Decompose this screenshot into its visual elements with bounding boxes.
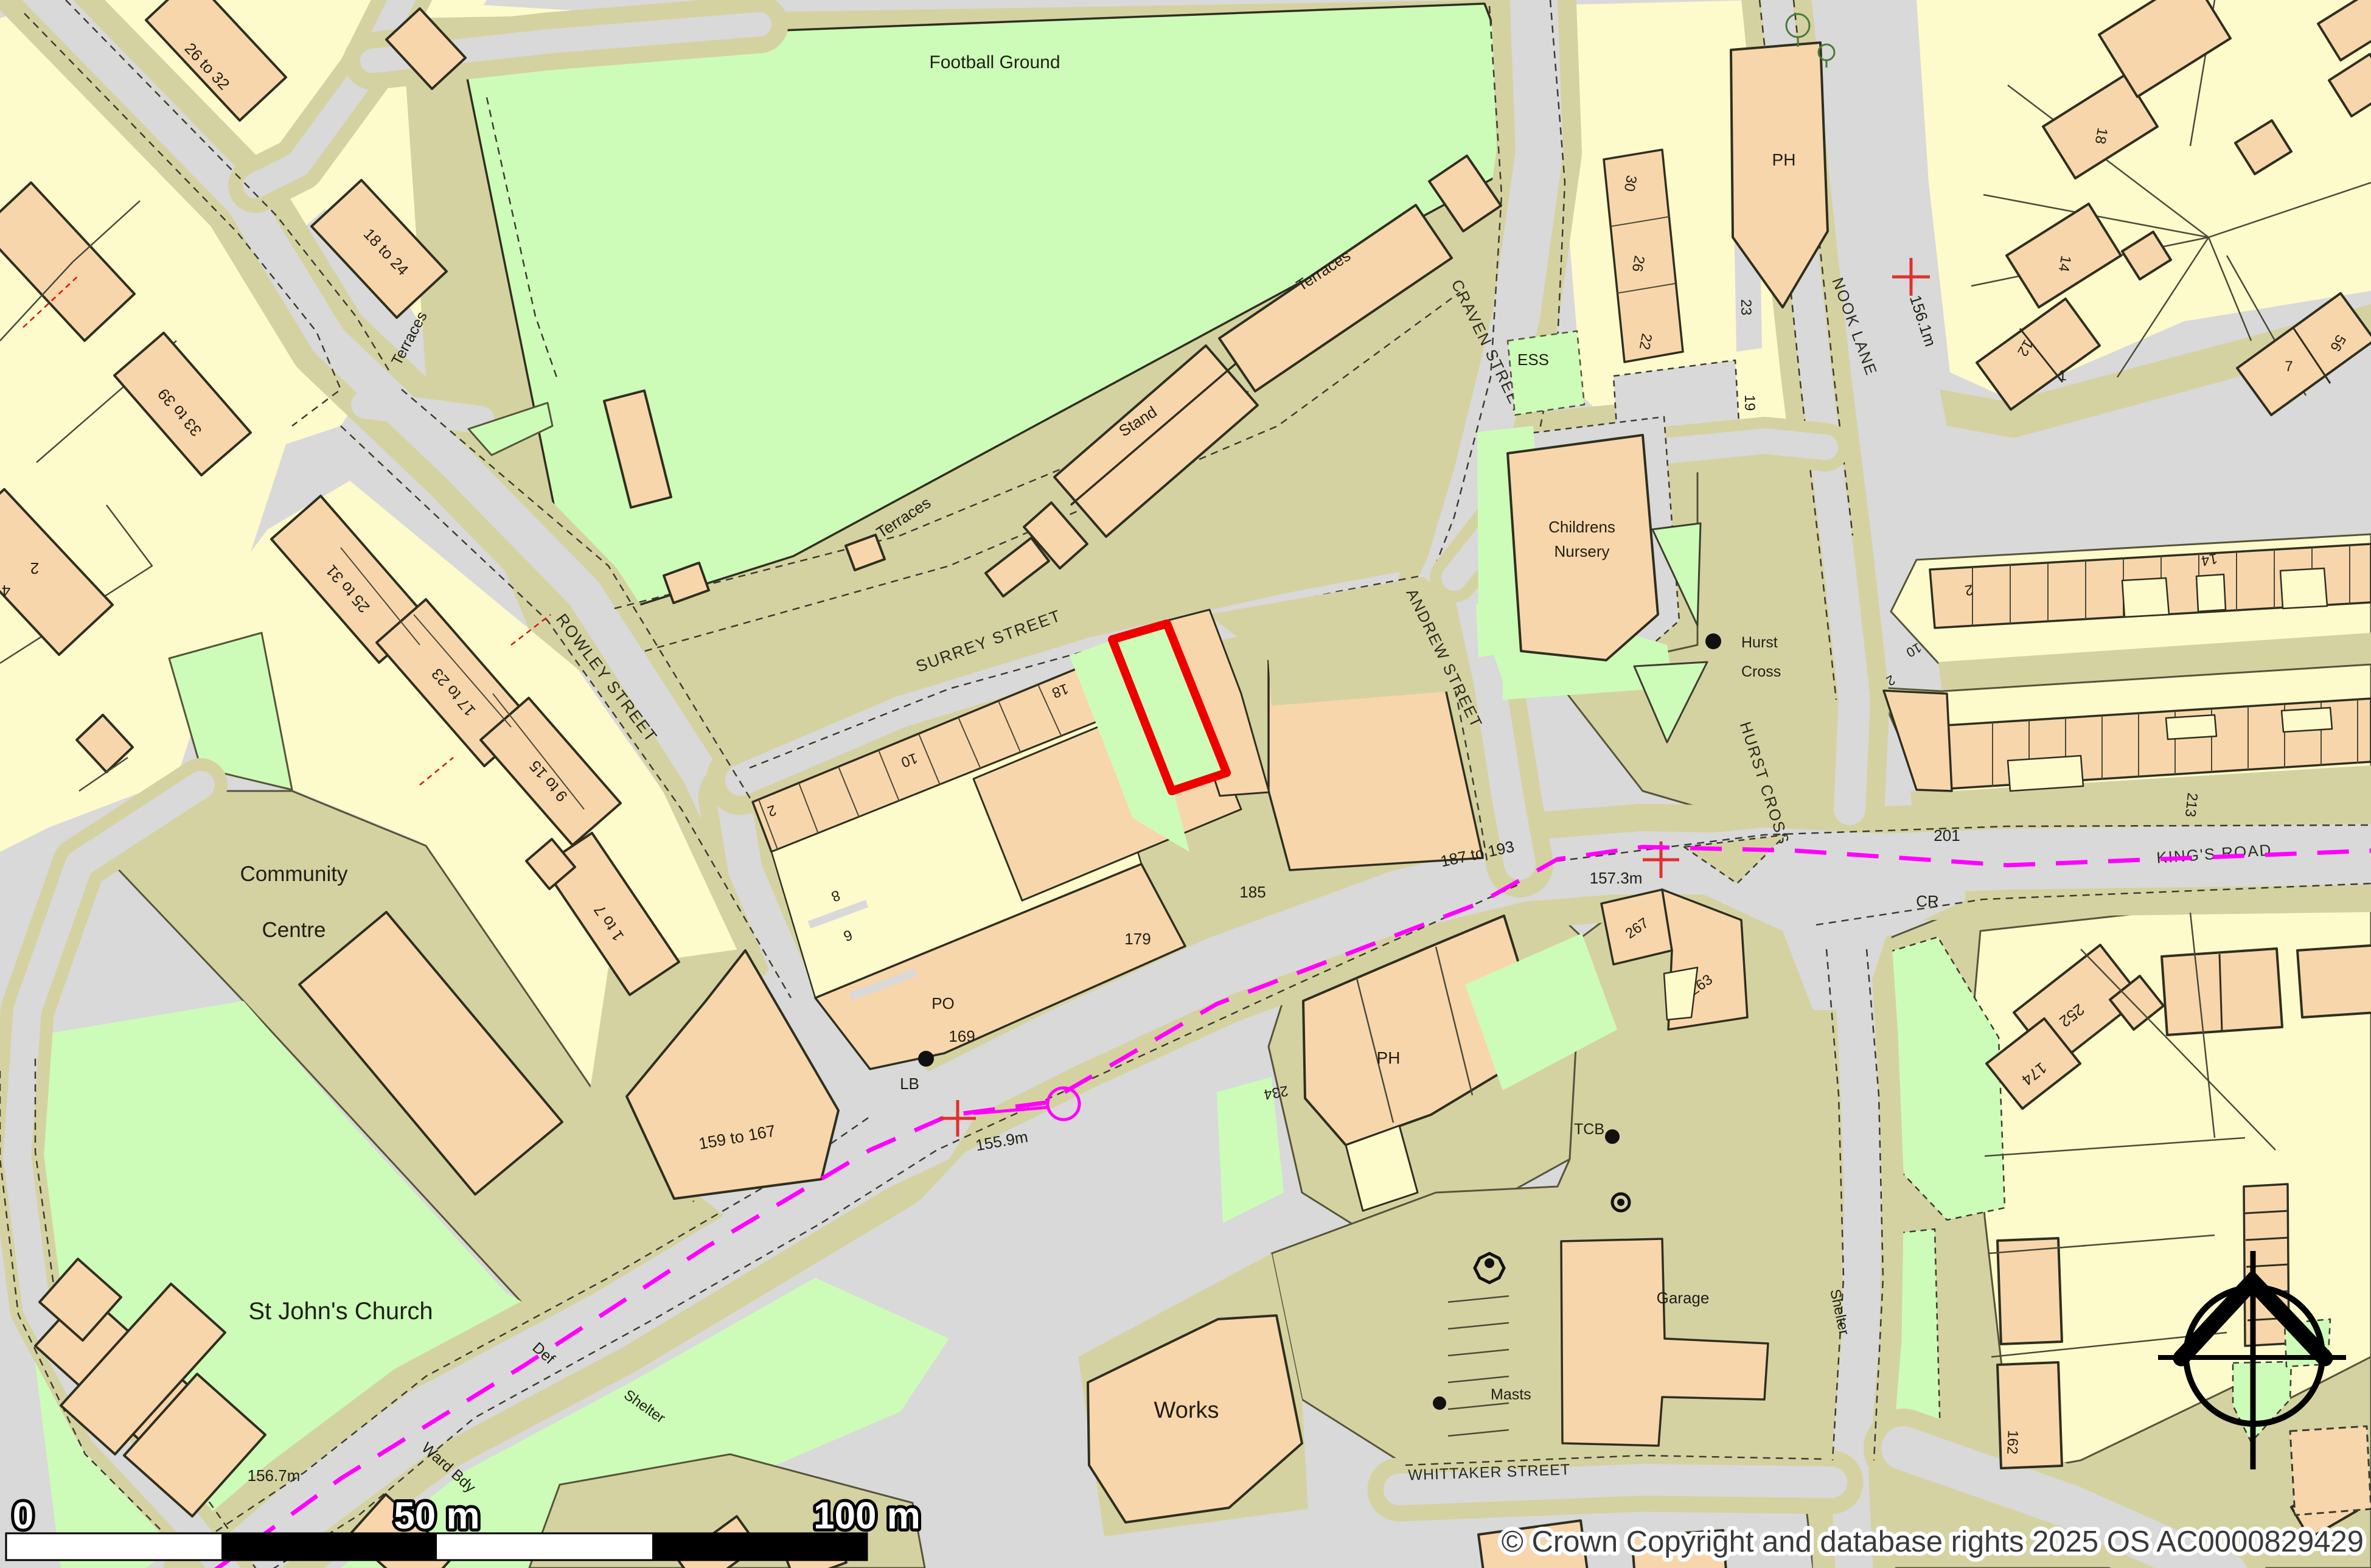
svg-text:PH: PH [1377, 1048, 1401, 1067]
svg-text:50 m: 50 m [394, 1495, 479, 1537]
svg-text:0: 0 [13, 1495, 33, 1537]
svg-text:18: 18 [2092, 127, 2111, 145]
svg-text:30: 30 [1621, 174, 1640, 193]
svg-text:162: 162 [2004, 1430, 2021, 1455]
svg-text:PO: PO [931, 994, 955, 1012]
svg-text:156.7m: 156.7m [248, 1466, 301, 1485]
svg-text:4: 4 [2, 582, 10, 600]
svg-text:2: 2 [30, 559, 39, 577]
svg-text:179: 179 [1124, 930, 1151, 948]
svg-text:100 m: 100 m [813, 1495, 921, 1537]
svg-text:185: 185 [1239, 883, 1266, 901]
svg-text:Childrens: Childrens [1548, 518, 1615, 536]
svg-text:ESS: ESS [1517, 350, 1549, 369]
svg-text:22: 22 [1636, 332, 1655, 351]
svg-text:Nursery: Nursery [1554, 542, 1609, 560]
svg-text:14: 14 [2055, 254, 2074, 273]
svg-text:23: 23 [1738, 299, 1754, 316]
svg-text:201: 201 [1934, 826, 1960, 845]
svg-text:Works: Works [1154, 1398, 1219, 1423]
svg-text:Cross: Cross [1741, 663, 1781, 680]
svg-text:TCB: TCB [1574, 1121, 1604, 1138]
svg-text:Centre: Centre [262, 918, 326, 942]
svg-text:© Crown Copyright and database: © Crown Copyright and database rights 20… [1502, 1525, 2364, 1558]
svg-text:Hurst: Hurst [1741, 634, 1778, 651]
svg-text:1: 1 [2058, 368, 2066, 384]
svg-text:7: 7 [2285, 358, 2293, 375]
svg-text:213: 213 [2182, 792, 2201, 818]
svg-text:Community: Community [240, 862, 348, 886]
svg-text:LB: LB [900, 1075, 919, 1093]
svg-text:157.3m: 157.3m [1590, 869, 1643, 887]
svg-text:Masts: Masts [1491, 1386, 1531, 1403]
svg-text:26: 26 [1629, 254, 1648, 273]
svg-text:PH: PH [1772, 150, 1796, 169]
svg-text:19: 19 [1741, 395, 1758, 411]
svg-text:CR: CR [1916, 892, 1939, 910]
svg-text:St John's Church: St John's Church [248, 1298, 433, 1325]
svg-text:Garage: Garage [1657, 1289, 1710, 1307]
svg-text:14: 14 [2200, 550, 2219, 569]
svg-text:169: 169 [949, 1027, 975, 1045]
svg-text:Football Ground: Football Ground [929, 52, 1060, 72]
